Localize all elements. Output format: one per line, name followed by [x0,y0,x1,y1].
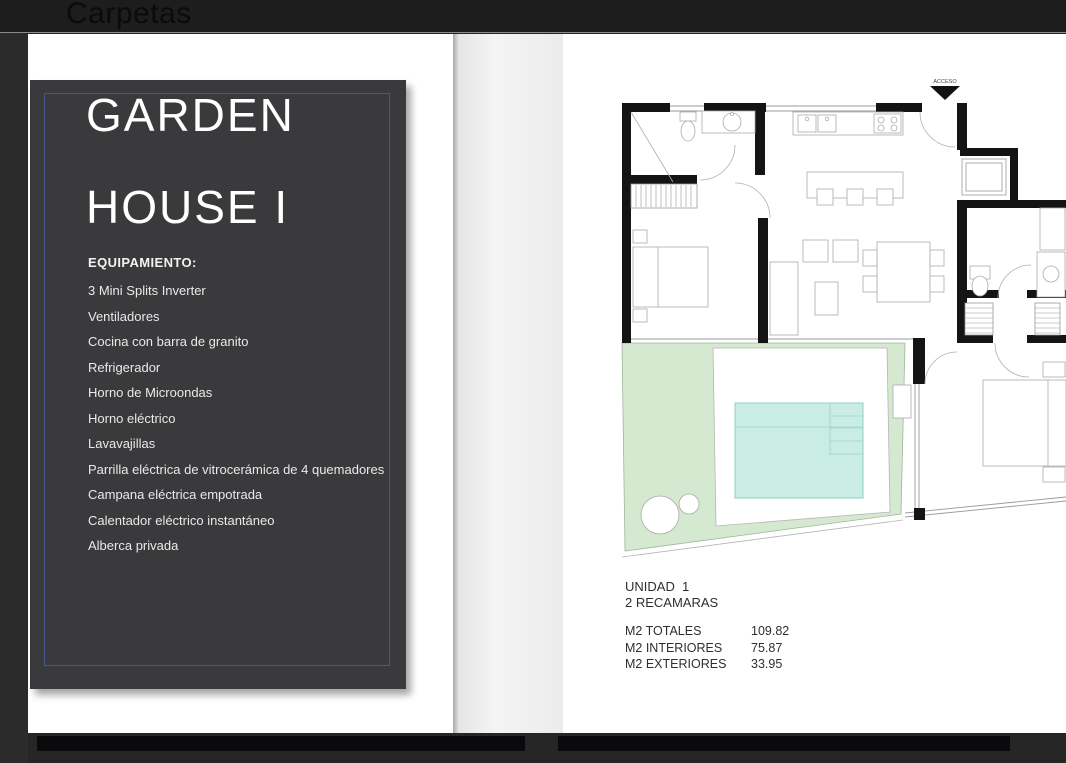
list-item: Alberca privada [88,533,388,559]
left-rail [0,33,28,763]
area-value: 75.87 [751,640,782,657]
page-thumbnail[interactable] [37,736,525,751]
list-item: Horno de Microondas [88,380,388,406]
stairs [965,303,1060,335]
top-bar: Carpetas [0,0,1066,33]
table-row: M2 EXTERIORES 33.95 [625,656,789,673]
unit-bedrooms: 2 RECAMARAS [625,595,718,611]
kitchen-counter [793,112,903,135]
pool [735,403,863,498]
stove [874,114,901,133]
page-title: Carpetas [66,0,192,31]
area-table: M2 TOTALES 109.82 M2 INTERIORES 75.87 M2… [625,623,789,673]
bed-left [633,230,708,322]
bed-right [983,362,1066,482]
tree-circle [679,494,699,514]
table-row: M2 TOTALES 109.82 [625,623,789,640]
list-item: Cocina con barra de granito [88,329,388,355]
list-item: 3 Mini Splits Inverter [88,278,388,304]
access-label: ACCESO [933,79,957,85]
unit-number: UNIDAD 1 [625,579,718,595]
unit-info: UNIDAD 1 2 RECAMARAS [625,579,718,611]
folder-viewer-screen: Carpetas GARDEN HOUSE I EQUIPAMIENTO: 3 … [0,0,1066,763]
page-thumbnail[interactable] [558,736,1010,751]
list-item: Ventiladores [88,304,388,330]
equipment-list: 3 Mini Splits Inverter Ventiladores Coci… [88,278,388,559]
area-value: 33.95 [751,656,782,673]
area-label: M2 INTERIORES [625,640,751,657]
list-item: Horno eléctrico [88,406,388,432]
list-item: Parrilla eléctrica de vitrocerámica de 4… [88,457,388,483]
brochure-info-panel: GARDEN HOUSE I EQUIPAMIENTO: 3 Mini Spli… [30,80,406,689]
access-arrow: ACCESO [930,79,960,100]
brochure-title-line2: HOUSE I [86,184,289,230]
area-value: 109.82 [751,623,789,640]
equipment-heading: EQUIPAMIENTO: [88,255,197,270]
table-row: M2 INTERIORES 75.87 [625,640,789,657]
brochure-title-line1: GARDEN [86,92,295,138]
list-item: Campana eléctrica empotrada [88,482,388,508]
tree-circle [641,496,679,534]
floor-plan: ACCESO [618,70,1066,570]
bathroom-right [970,208,1065,297]
closet-right-top [962,159,1006,195]
list-item: Calentador eléctrico instantáneo [88,508,388,534]
page-gutter [453,34,563,733]
closet-hatch [631,184,697,208]
bathroom-top-left [631,111,755,182]
area-label: M2 TOTALES [625,623,751,640]
kitchen-island [807,172,903,205]
area-label: M2 EXTERIORES [625,656,751,673]
list-item: Lavavajillas [88,431,388,457]
list-item: Refrigerador [88,355,388,381]
